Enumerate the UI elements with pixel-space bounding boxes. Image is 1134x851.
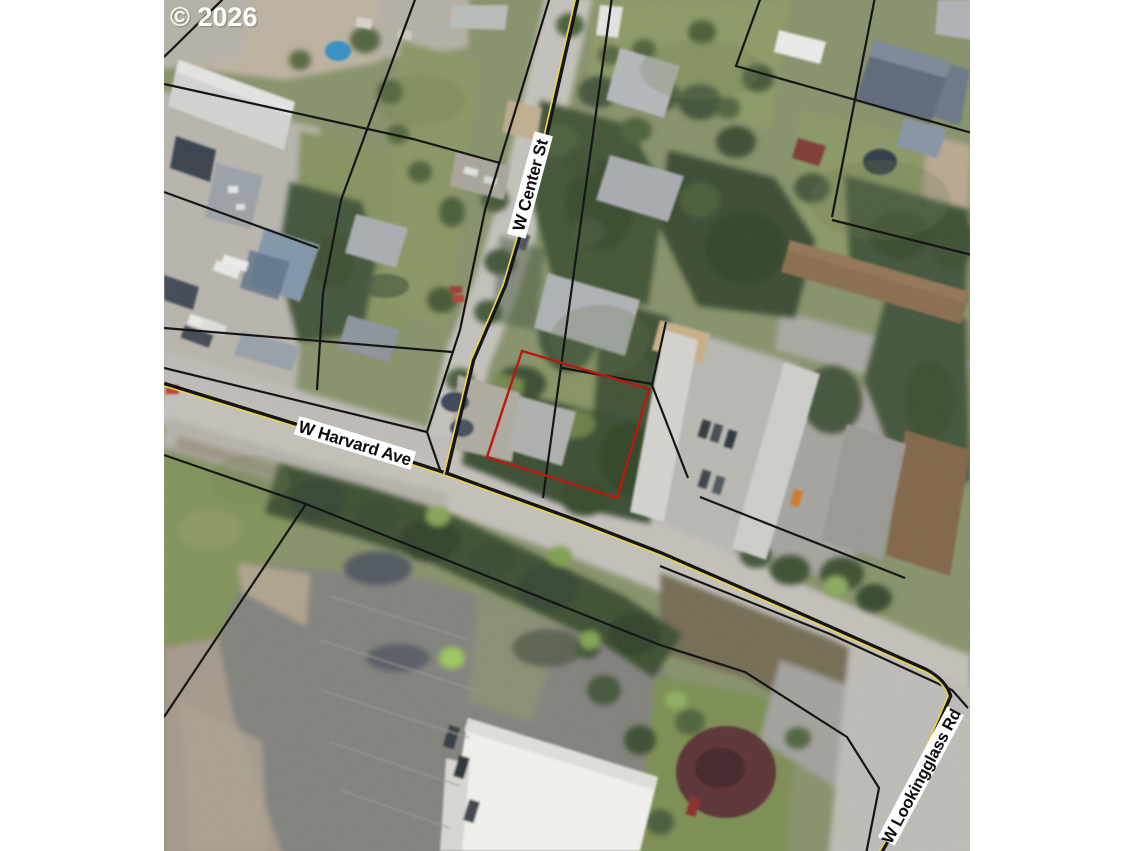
- svg-text:© 2026: © 2026: [170, 2, 257, 32]
